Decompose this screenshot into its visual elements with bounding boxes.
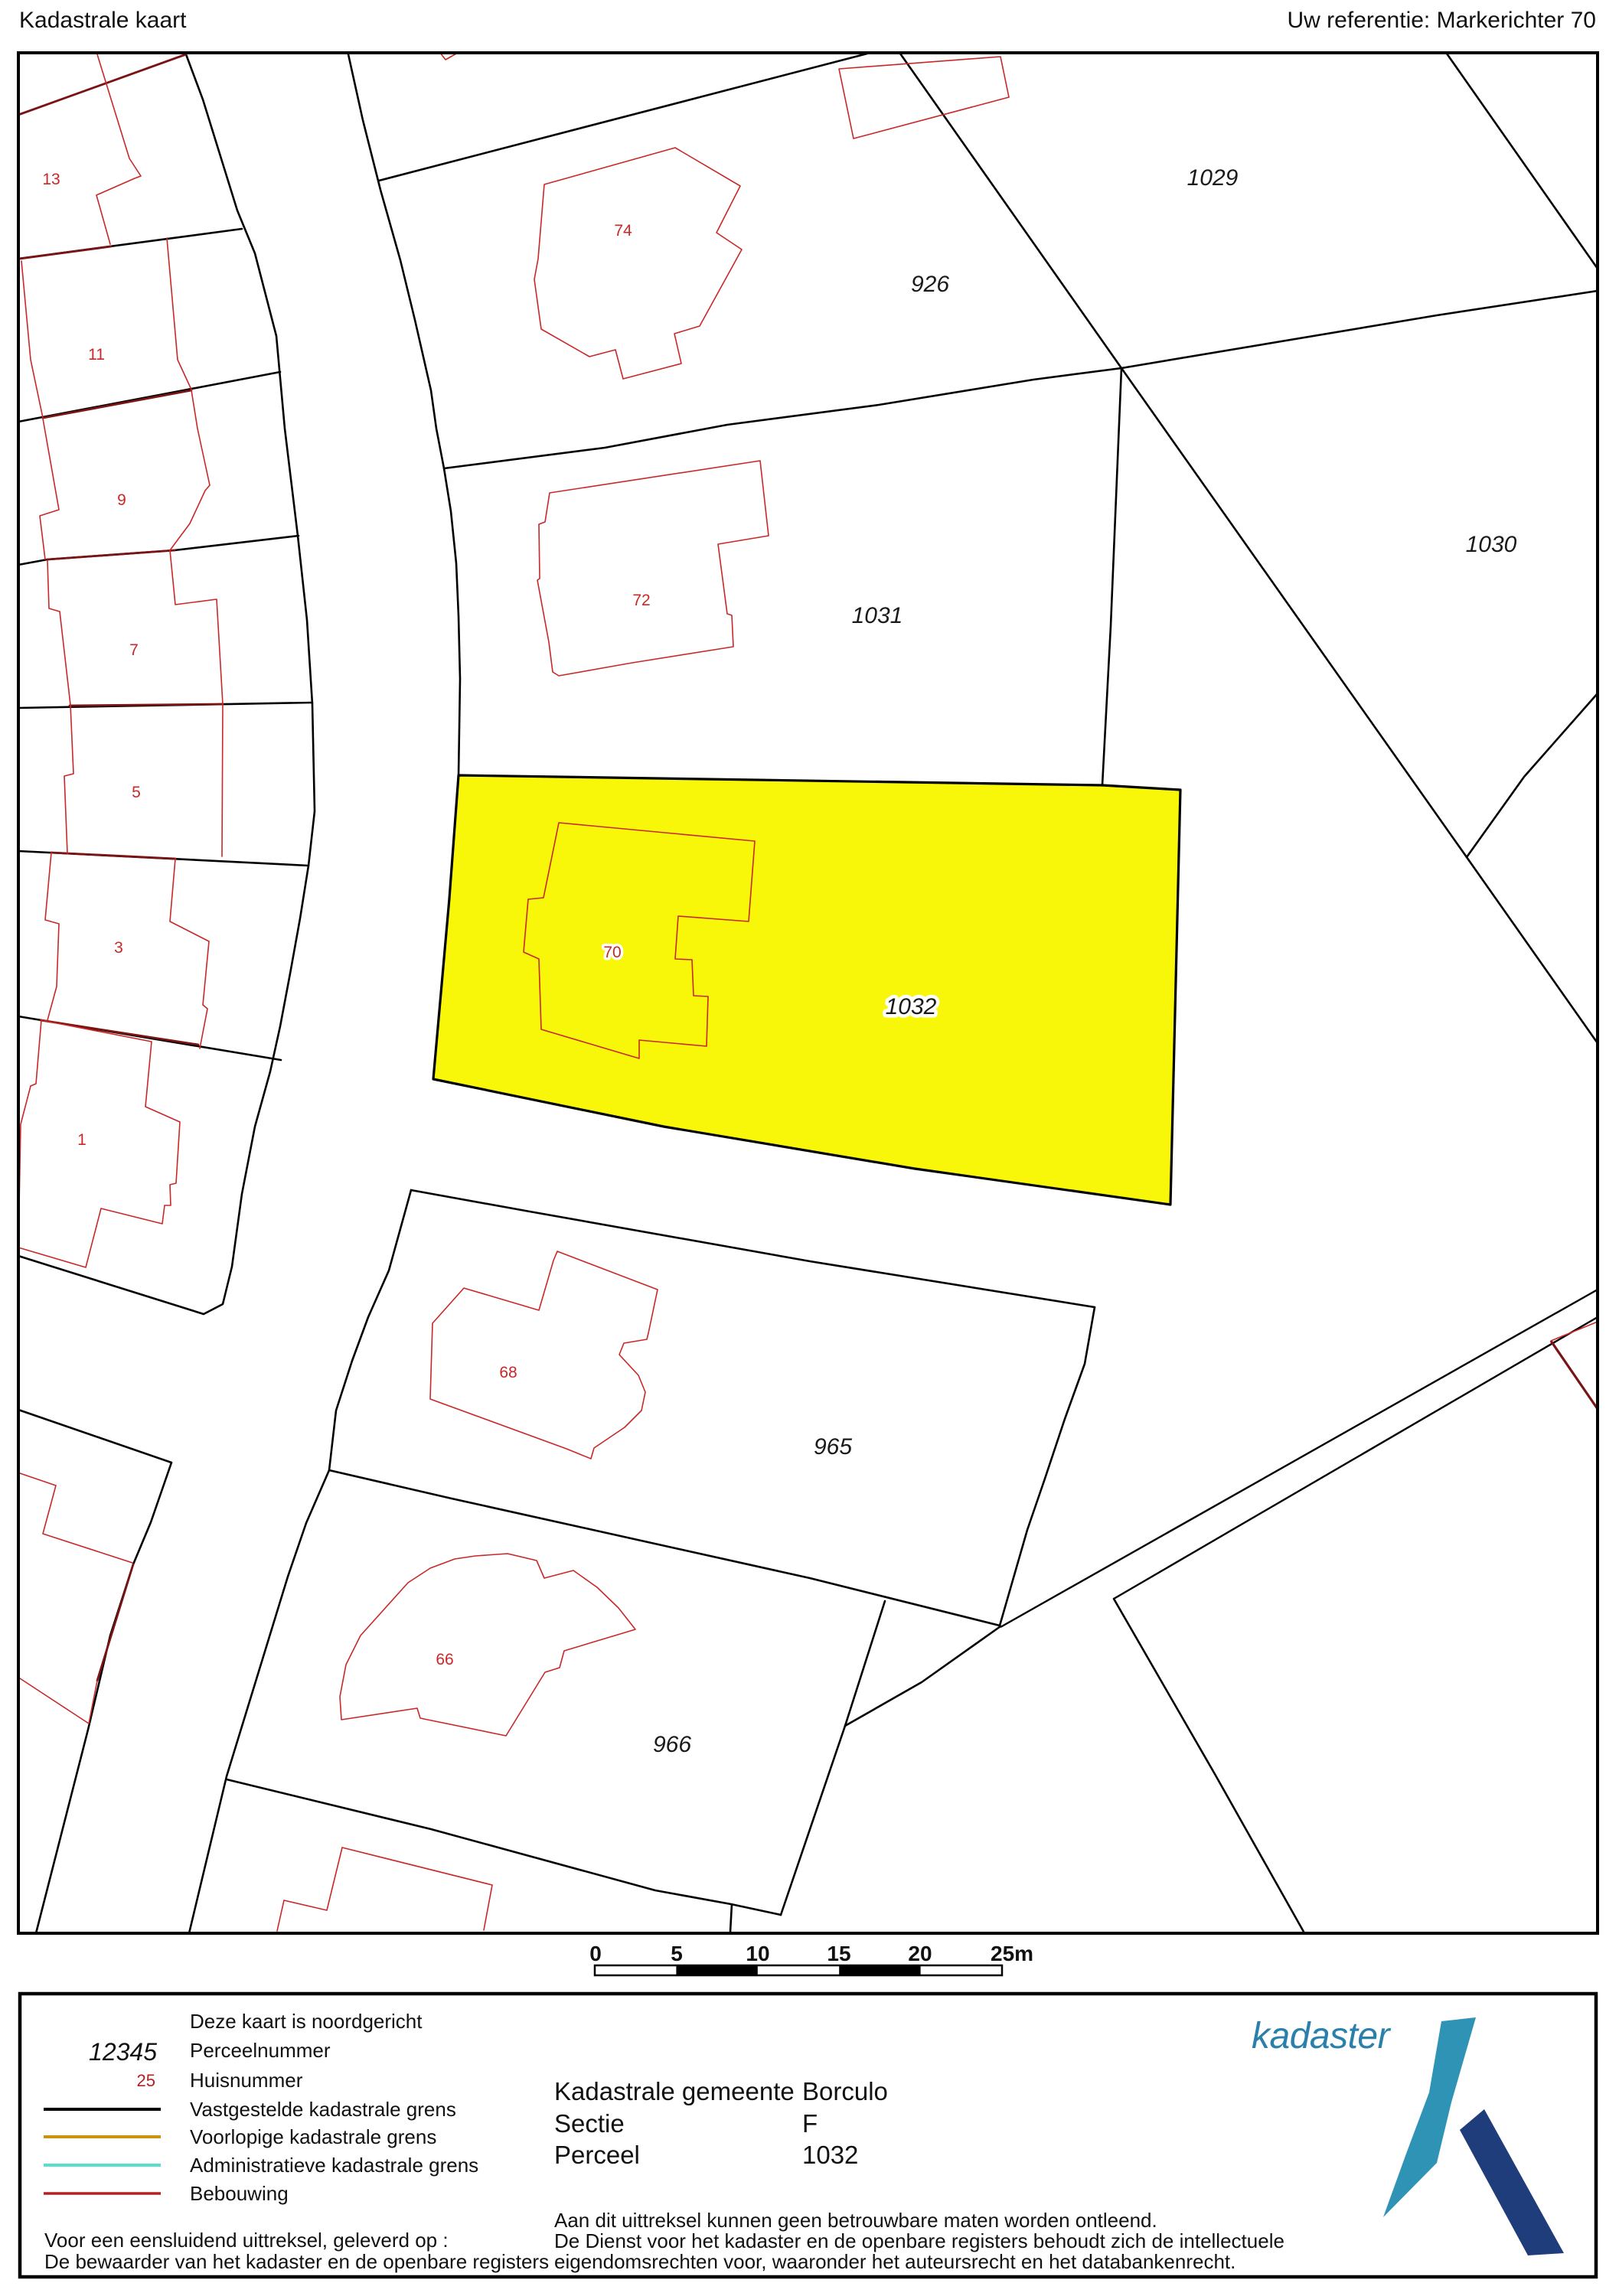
svg-text:De bewaarder van het kadaster: De bewaarder van het kadaster en de open… [44, 2250, 549, 2273]
svg-text:0: 0 [589, 1942, 602, 1965]
svg-text:70: 70 [603, 944, 621, 961]
svg-text:72: 72 [632, 592, 650, 609]
svg-text:Bebouwing: Bebouwing [190, 2182, 289, 2205]
svg-text:5: 5 [132, 784, 141, 801]
svg-text:Perceel: Perceel [554, 2141, 640, 2169]
svg-text:Perceelnummer: Perceelnummer [190, 2039, 331, 2062]
svg-text:Deze kaart is noordgericht: Deze kaart is noordgericht [190, 2010, 423, 2033]
svg-text:De Dienst voor het kadaster en: De Dienst voor het kadaster en de openba… [554, 2229, 1284, 2252]
svg-text:eigendomsrechten voor, waarond: eigendomsrechten voor, waaronder het aut… [554, 2250, 1235, 2273]
svg-text:1029: 1029 [1187, 165, 1239, 191]
svg-text:Vastgestelde kadastrale grens: Vastgestelde kadastrale grens [190, 2098, 456, 2121]
svg-text:Voor een eensluidend uittrekse: Voor een eensluidend uittreksel, gelever… [44, 2229, 449, 2252]
svg-text:10: 10 [746, 1942, 769, 1965]
svg-text:25: 25 [137, 2071, 155, 2090]
svg-text:926: 926 [911, 272, 949, 297]
svg-text:1032: 1032 [802, 2141, 858, 2169]
svg-text:Uw referentie: Markerichter 70: Uw referentie: Markerichter 70 [1288, 8, 1596, 33]
svg-text:Kadastrale kaart: Kadastrale kaart [19, 8, 187, 33]
svg-text:5: 5 [671, 1942, 683, 1965]
svg-text:12345: 12345 [89, 2038, 157, 2066]
svg-text:7: 7 [129, 641, 139, 659]
svg-text:Administratieve kadastrale gre: Administratieve kadastrale grens [190, 2154, 478, 2177]
svg-text:Aan dit uittreksel kunnen geen: Aan dit uittreksel kunnen geen betrouwba… [554, 2209, 1157, 2232]
svg-text:kadaster: kadaster [1252, 2016, 1392, 2056]
svg-text:F: F [802, 2109, 818, 2138]
svg-text:74: 74 [614, 222, 632, 240]
svg-text:15: 15 [827, 1942, 850, 1965]
svg-text:1031: 1031 [852, 603, 903, 628]
svg-text:1032: 1032 [886, 994, 937, 1019]
svg-text:20: 20 [908, 1942, 932, 1965]
svg-text:Sectie: Sectie [554, 2109, 625, 2138]
svg-text:Huisnummer: Huisnummer [190, 2069, 303, 2092]
svg-text:Kadastrale gemeente: Kadastrale gemeente [554, 2077, 795, 2105]
svg-text:Voorlopige kadastrale grens: Voorlopige kadastrale grens [190, 2125, 436, 2148]
svg-text:965: 965 [814, 1434, 852, 1459]
svg-text:13: 13 [42, 171, 60, 188]
svg-text:966: 966 [653, 1732, 691, 1757]
svg-text:1030: 1030 [1466, 532, 1517, 557]
svg-text:68: 68 [499, 1364, 517, 1381]
svg-text:11: 11 [88, 346, 105, 364]
svg-text:Borculo: Borculo [802, 2077, 888, 2105]
svg-text:3: 3 [114, 939, 123, 957]
svg-text:66: 66 [436, 1651, 453, 1668]
svg-text:9: 9 [117, 491, 126, 509]
svg-text:25m: 25m [991, 1942, 1033, 1965]
svg-text:1: 1 [77, 1131, 86, 1149]
